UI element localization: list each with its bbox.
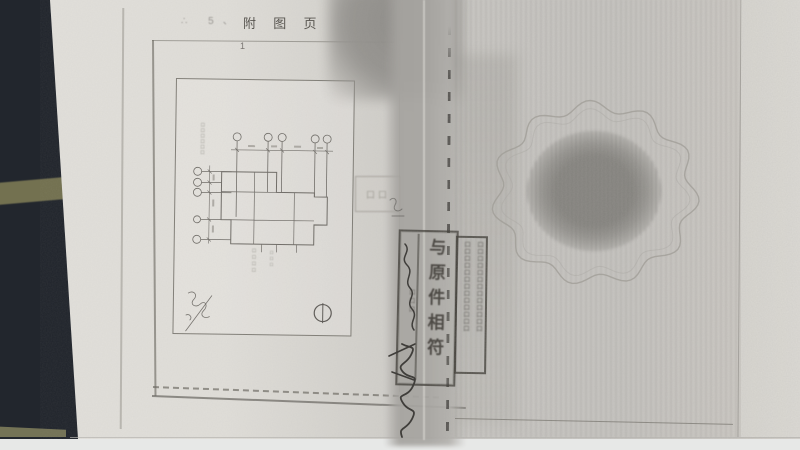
tan-wedge <box>0 421 66 437</box>
dense-stamp-column: 口口口口口口口口口口口口口 <box>473 241 481 369</box>
drawing-frame: 口口口口口口 口口口口 口口口 <box>172 78 355 336</box>
seal-outline <box>492 101 699 284</box>
dense-stamp-column: 口口口口口口口口口口口口口 <box>460 241 468 369</box>
axis-grid-left <box>193 165 232 244</box>
axis-grid-top <box>230 133 333 218</box>
official-seal <box>487 95 703 291</box>
pencil-scribble <box>185 292 212 332</box>
page-number: 1 <box>240 41 245 51</box>
seal-outline-inner <box>501 109 690 276</box>
floor-plan-svg <box>173 79 354 335</box>
stamp-main-text: 与原件相符 <box>420 238 448 379</box>
dense-text-stamp: 口口口口口口口口口口口口口 口口口口口口口口口口口口口 <box>454 236 488 374</box>
north-symbol-icon <box>314 303 331 323</box>
stamp-side-column: 口口口 <box>399 288 415 379</box>
faint-pencil-marks: ∴ 5、 <box>181 12 242 27</box>
match-original-stamp: 口口口 与原件相符 <box>395 229 459 386</box>
stamp-divider-line <box>414 234 419 380</box>
tan-stripe <box>0 177 67 205</box>
right-page-light-area <box>741 0 800 437</box>
